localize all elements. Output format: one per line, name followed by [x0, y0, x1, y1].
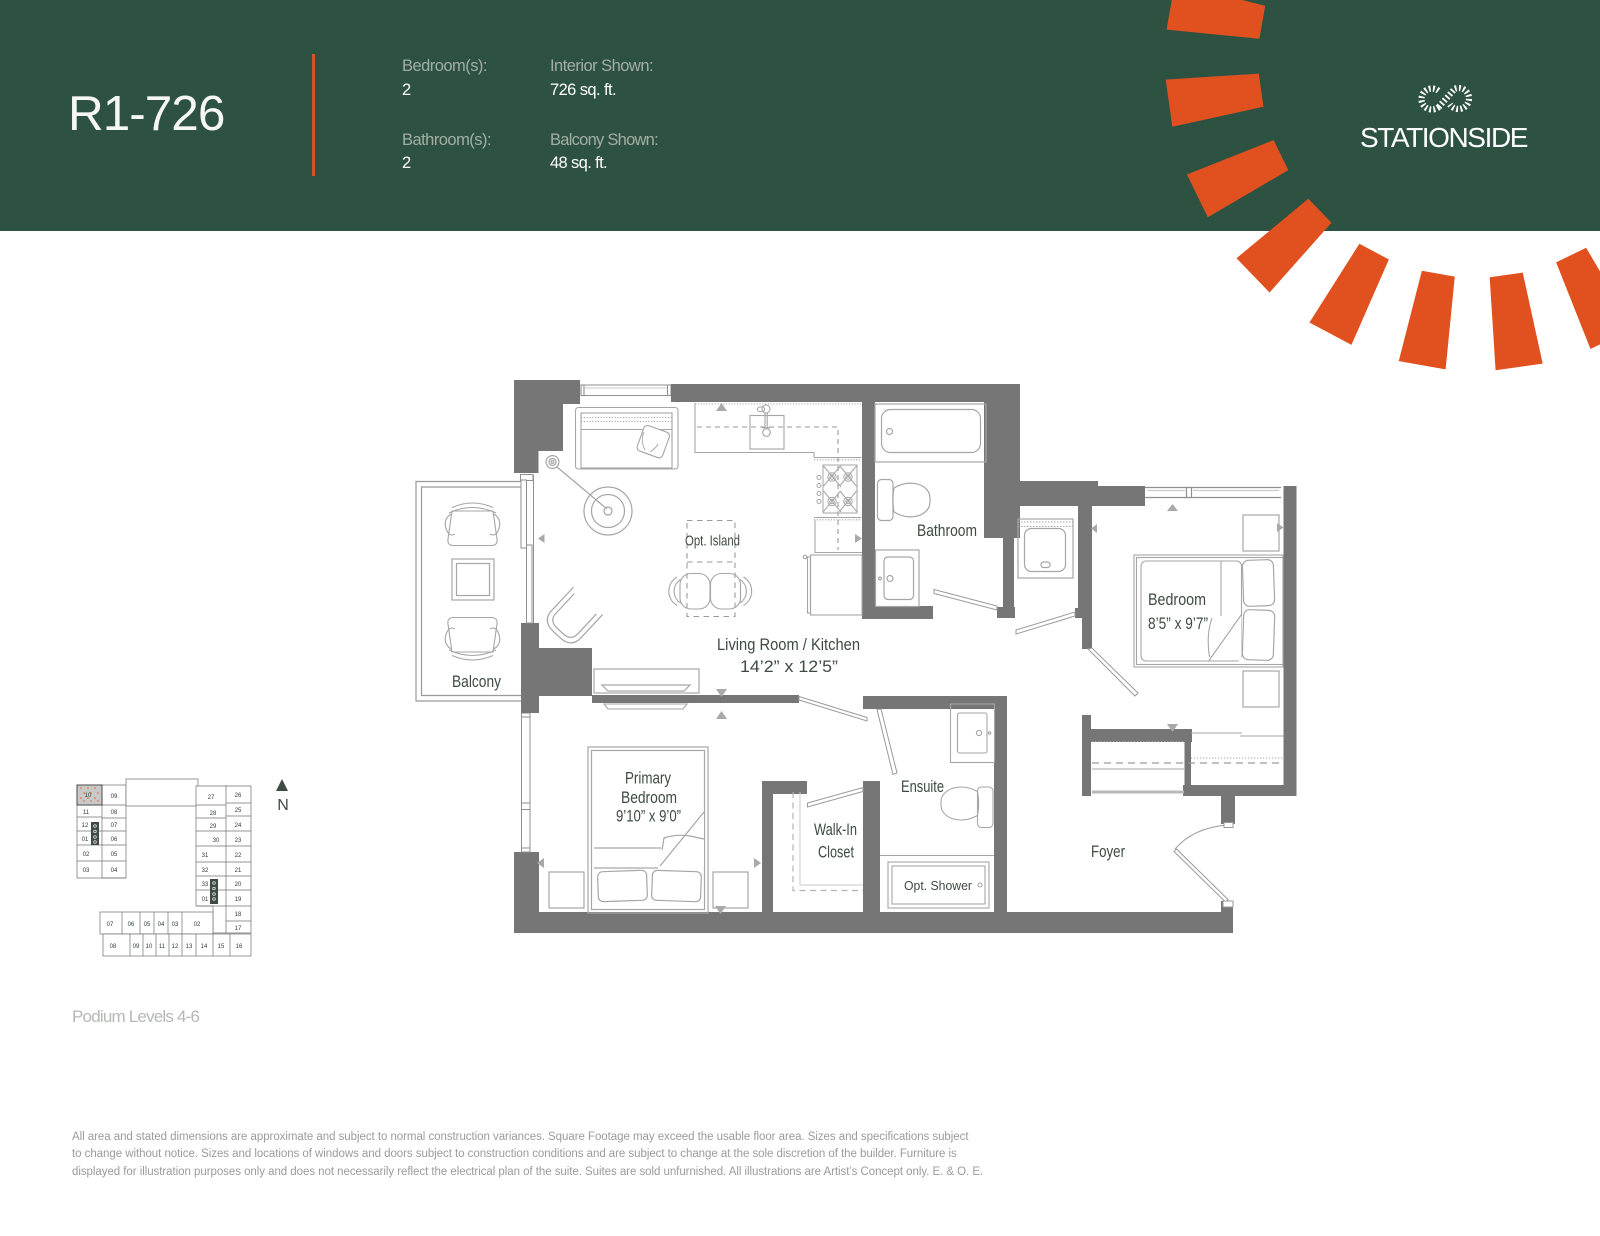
svg-text:32: 32 — [202, 868, 209, 874]
svg-text:27: 27 — [208, 795, 215, 801]
svg-text:07: 07 — [107, 922, 114, 928]
svg-text:22: 22 — [235, 853, 242, 859]
svg-text:20: 20 — [235, 882, 242, 888]
svg-text:01: 01 — [82, 837, 89, 843]
svg-text:24: 24 — [235, 823, 242, 829]
svg-text:06: 06 — [111, 837, 118, 843]
svg-text:01: 01 — [202, 897, 209, 903]
svg-text:15: 15 — [218, 944, 225, 950]
svg-text:26: 26 — [235, 793, 242, 799]
svg-text:31: 31 — [202, 853, 209, 859]
svg-text:17: 17 — [235, 926, 242, 932]
svg-text:25: 25 — [235, 808, 242, 814]
svg-text:13: 13 — [186, 944, 193, 950]
svg-text:03: 03 — [83, 868, 90, 874]
svg-text:09: 09 — [133, 944, 140, 950]
svg-text:14: 14 — [201, 944, 208, 950]
svg-text:10: 10 — [85, 793, 92, 799]
svg-text:11: 11 — [159, 944, 166, 950]
svg-text:02: 02 — [83, 852, 90, 858]
svg-text:12: 12 — [82, 823, 89, 829]
svg-text:N: N — [277, 797, 289, 814]
svg-text:10: 10 — [146, 944, 153, 950]
svg-text:21: 21 — [235, 868, 242, 874]
svg-text:29: 29 — [210, 824, 217, 830]
svg-text:08: 08 — [110, 944, 117, 950]
svg-text:19: 19 — [235, 897, 242, 903]
svg-text:05: 05 — [144, 922, 151, 928]
svg-text:04: 04 — [158, 922, 165, 928]
svg-text:09: 09 — [111, 794, 118, 800]
svg-text:08: 08 — [111, 810, 118, 816]
svg-text:16: 16 — [236, 944, 243, 950]
svg-text:30: 30 — [213, 838, 220, 844]
svg-text:07: 07 — [111, 823, 118, 829]
svg-text:11: 11 — [83, 810, 90, 816]
svg-text:04: 04 — [111, 868, 118, 874]
svg-text:28: 28 — [210, 811, 217, 817]
svg-text:02: 02 — [194, 922, 201, 928]
svg-text:18: 18 — [235, 912, 242, 918]
svg-text:03: 03 — [172, 922, 179, 928]
svg-text:23: 23 — [235, 838, 242, 844]
svg-text:06: 06 — [128, 922, 135, 928]
svg-text:12: 12 — [172, 944, 179, 950]
svg-text:05: 05 — [111, 852, 118, 858]
svg-text:33: 33 — [202, 882, 209, 888]
